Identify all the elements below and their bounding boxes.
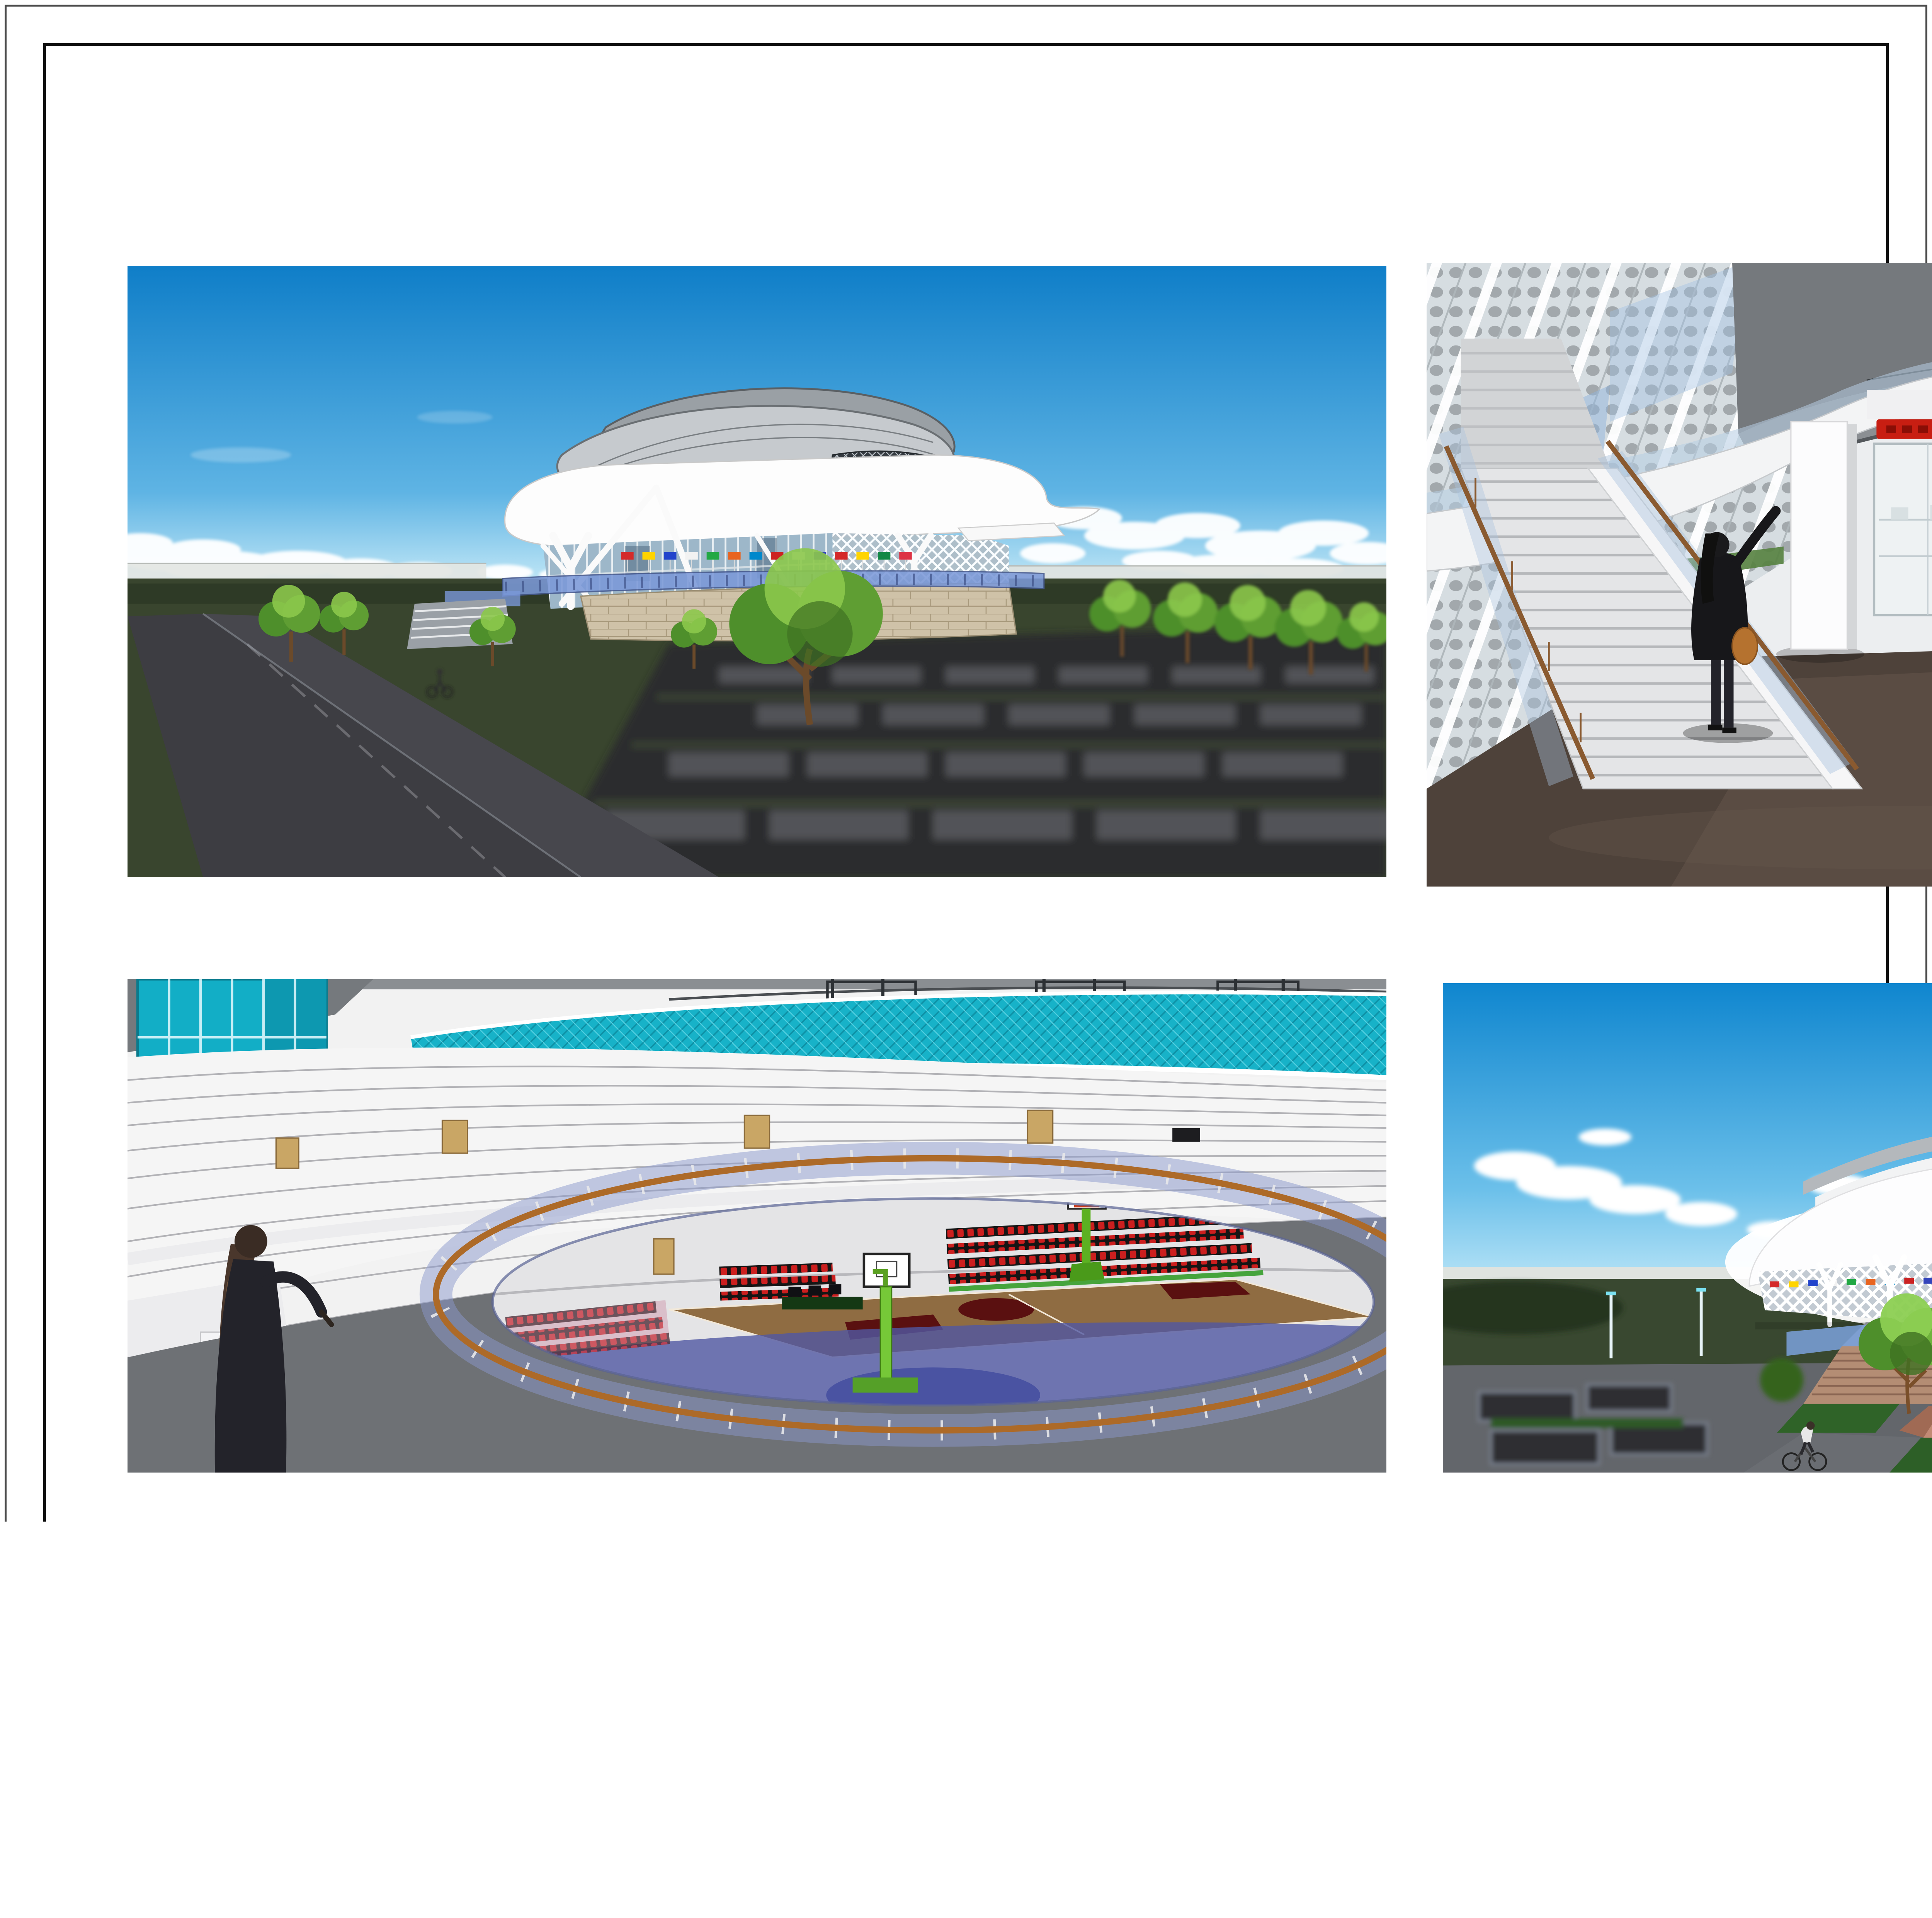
university-name: UNIVERSITAS KRISTEN PETRA <box>1638 1876 1876 1892</box>
program-name: PROGRAM STUDI ARSITEKTUR <box>1638 1796 1876 1843</box>
title-block-header: TUGAS AKHIR - SEMESTER GENAP 2014/2015 <box>1881 1664 1932 1688</box>
storefront-adidas: adidas <box>1867 390 1932 615</box>
faculty-name: FAKULTAS TEKNIK SIPIL DAN PERENCANAAN <box>1638 1843 1876 1876</box>
presentation-sheet: adidas <box>0 0 1932 1918</box>
render-exterior-side-view <box>128 266 1386 877</box>
parking-lot <box>543 625 1386 877</box>
university-seal-logo: UNIVERSITAS KRISTEN PETRA <box>1700 1670 1814 1796</box>
title-block-institution-cell: UNIVERSITAS KRISTEN PETRA <box>1635 1664 1881 1915</box>
city-name: SURABAYA <box>1638 1892 1876 1909</box>
render-interior-lobby-view: adidas <box>1427 263 1932 887</box>
judul-gambar-cell: JUDUL GAMBAR PERSPEKTIF <box>1881 1761 1932 1915</box>
title-block: UNIVERSITAS KRISTEN PETRA <box>1633 1662 1932 1875</box>
drawing-title: PERSPEKTIF <box>1921 1803 1932 1827</box>
judul-gambar-label: JUDUL GAMBAR <box>1881 1761 1932 1780</box>
sunken-court <box>436 1158 1386 1430</box>
institution-text: PROGRAM STUDI ARSITEKTUR FAKULTAS TEKNIK… <box>1638 1796 1876 1909</box>
judul-tugas-label: JUDUL TUGAS <box>1881 1688 1932 1708</box>
judul-tugas-cell: JUDUL TUGAS ARENA BOLA BASKET DI TANGERA… <box>1881 1688 1932 1761</box>
render-arena-bowl-view <box>128 979 1386 1559</box>
road <box>1443 1474 1932 1578</box>
render-exterior-front-view: GARUDA ARENA <box>1443 983 1932 1578</box>
